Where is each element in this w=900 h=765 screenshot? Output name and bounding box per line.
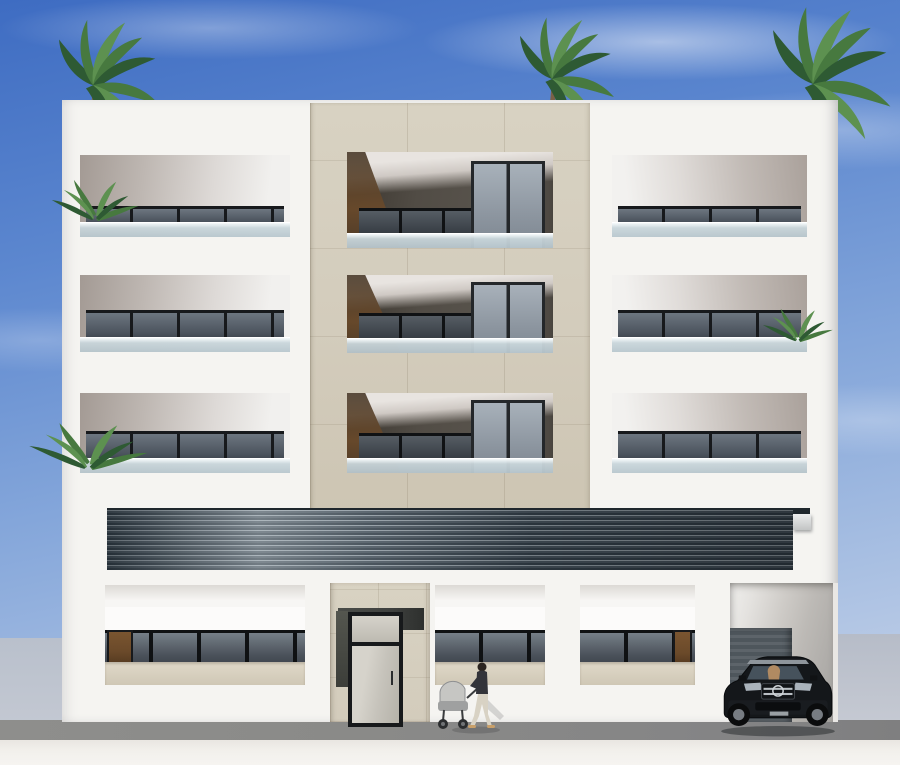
balcony-glazing bbox=[618, 431, 801, 460]
balcony-glazing bbox=[359, 208, 474, 235]
glass-balustrade bbox=[347, 458, 553, 473]
door-transom bbox=[352, 616, 399, 646]
storefront-soffit bbox=[435, 585, 545, 608]
balcony-plant-left-floor3 bbox=[32, 418, 142, 474]
glass-balustrade bbox=[347, 338, 553, 353]
door-handle bbox=[391, 671, 393, 685]
timber-door bbox=[107, 630, 133, 666]
storefront-soffit bbox=[580, 585, 695, 608]
balcony-plant-left-floor1 bbox=[52, 168, 136, 234]
storefront-fascia bbox=[435, 607, 545, 630]
storefront-parapet bbox=[105, 662, 305, 685]
storefront-parapet bbox=[580, 662, 695, 685]
storefront-fascia bbox=[580, 607, 695, 630]
car-shadow bbox=[721, 726, 835, 736]
timber-door bbox=[673, 630, 692, 666]
storefront-left bbox=[105, 585, 305, 685]
foreground-walkway bbox=[0, 740, 900, 765]
distant-wall-right bbox=[837, 634, 900, 727]
balcony-center-floor2 bbox=[347, 275, 553, 353]
balcony-center-floor1 bbox=[347, 152, 553, 248]
glass-balustrade bbox=[347, 233, 553, 248]
louvre-commercial-band bbox=[107, 510, 793, 570]
balcony-right-floor1 bbox=[612, 155, 807, 237]
balcony-glazing bbox=[359, 313, 474, 340]
balcony-plant-right-floor2 bbox=[758, 296, 836, 354]
balcony-center-floor3 bbox=[347, 393, 553, 473]
glass-balustrade bbox=[80, 337, 290, 352]
portal-side-slit bbox=[336, 611, 348, 687]
balcony-glazing bbox=[359, 433, 474, 460]
storefront-fascia bbox=[105, 607, 305, 630]
suv-car bbox=[716, 648, 840, 740]
glass-balustrade bbox=[612, 222, 807, 237]
entrance-door bbox=[348, 612, 403, 727]
balcony-glazing bbox=[86, 310, 283, 339]
architectural-render bbox=[0, 0, 900, 765]
roof-palm-center bbox=[492, 26, 612, 108]
louvre-end-bracket bbox=[793, 514, 811, 530]
storefront-right bbox=[580, 585, 695, 685]
pedestrian-with-pram bbox=[430, 658, 510, 736]
balcony-left-floor2 bbox=[80, 275, 290, 352]
distant-wall-left bbox=[0, 638, 63, 724]
storefront-soffit bbox=[105, 585, 305, 608]
balcony-right-floor3 bbox=[612, 393, 807, 473]
entrance-portal bbox=[330, 583, 430, 722]
glass-balustrade bbox=[612, 458, 807, 473]
